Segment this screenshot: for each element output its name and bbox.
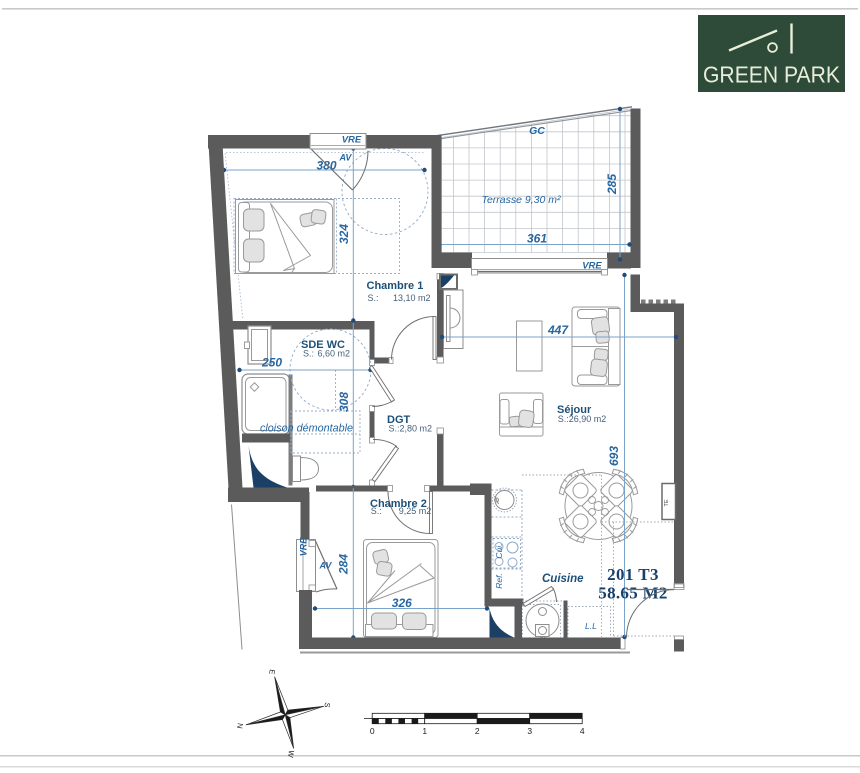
svg-text:Ref.: Ref. bbox=[494, 573, 504, 589]
svg-text:S.:: S.: bbox=[303, 349, 314, 359]
svg-text:380: 380 bbox=[316, 159, 336, 173]
svg-text:13,10 m2: 13,10 m2 bbox=[393, 293, 431, 303]
svg-text:285: 285 bbox=[605, 174, 619, 195]
svg-text:1: 1 bbox=[422, 726, 427, 736]
svg-text:693: 693 bbox=[607, 446, 621, 466]
svg-text:308: 308 bbox=[337, 392, 351, 412]
svg-text:L.L: L.L bbox=[585, 621, 597, 631]
svg-text:S.:: S.: bbox=[371, 506, 382, 516]
svg-text:VRE: VRE bbox=[582, 261, 602, 272]
svg-text:0: 0 bbox=[370, 726, 375, 736]
svg-text:326: 326 bbox=[392, 596, 412, 610]
svg-text:324: 324 bbox=[337, 224, 351, 244]
svg-text:VRE: VRE bbox=[299, 537, 309, 557]
svg-text:201 T3: 201 T3 bbox=[607, 565, 659, 584]
svg-text:VRE: VRE bbox=[342, 135, 362, 146]
svg-text:284: 284 bbox=[337, 554, 351, 575]
svg-text:Cuisine: Cuisine bbox=[542, 573, 584, 585]
svg-text:GREEN PARK: GREEN PARK bbox=[703, 62, 841, 88]
svg-text:361: 361 bbox=[527, 232, 547, 246]
svg-text:9,25 m2: 9,25 m2 bbox=[399, 506, 432, 516]
svg-text:6,60 m2: 6,60 m2 bbox=[318, 349, 351, 359]
svg-text:Chambre 1: Chambre 1 bbox=[367, 280, 424, 292]
svg-text:S.:: S.: bbox=[368, 293, 379, 303]
svg-text:TE: TE bbox=[664, 499, 670, 506]
svg-text:AV: AV bbox=[319, 561, 333, 571]
svg-text:447: 447 bbox=[547, 323, 569, 337]
svg-text:250: 250 bbox=[261, 356, 282, 370]
svg-text:Cui.: Cui. bbox=[494, 543, 504, 558]
svg-text:cloison démontable: cloison démontable bbox=[260, 423, 353, 435]
svg-text:S.:2,80 m2: S.:2,80 m2 bbox=[389, 424, 433, 434]
svg-text:Terrasse 9,30 m²: Terrasse 9,30 m² bbox=[482, 194, 561, 206]
svg-text:4: 4 bbox=[580, 726, 585, 736]
svg-text:3: 3 bbox=[527, 726, 532, 736]
svg-text:S.:26,90 m2: S.:26,90 m2 bbox=[558, 414, 607, 424]
svg-text:GC: GC bbox=[529, 125, 545, 137]
svg-text:AV: AV bbox=[339, 153, 353, 163]
svg-text:2: 2 bbox=[475, 726, 480, 736]
